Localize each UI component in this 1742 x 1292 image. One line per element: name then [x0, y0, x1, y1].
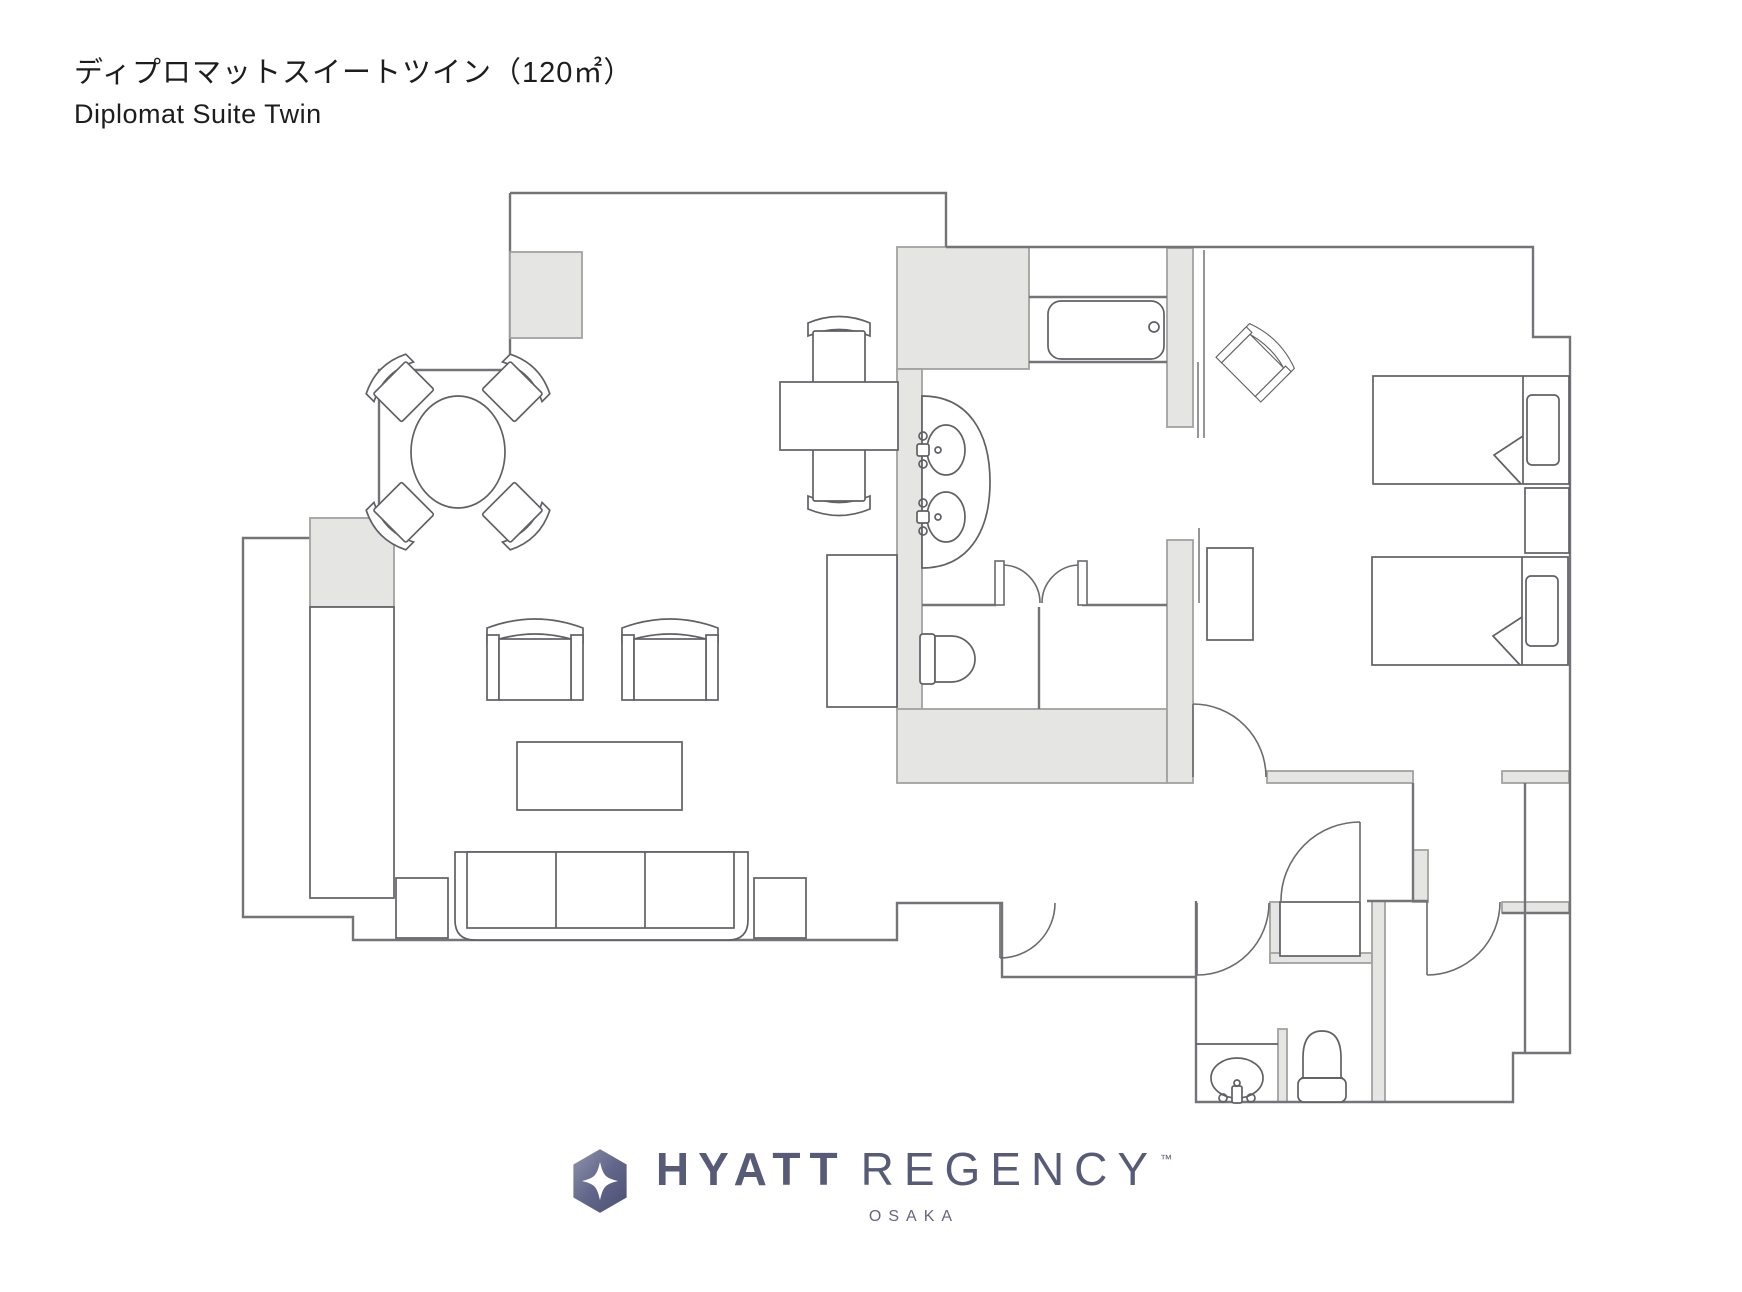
vanity-double-sink [917, 396, 990, 568]
logo-word-regency: REGENCY [861, 1142, 1158, 1196]
wc-double-swing-door [995, 561, 1087, 605]
wall-strip-bath-west [897, 369, 922, 710]
twin-bed-1 [1373, 376, 1569, 484]
logo-location: OSAKA [869, 1208, 959, 1226]
closet-partitions [1367, 783, 1569, 1053]
wall-stub-closet [1413, 850, 1428, 902]
tall-cabinet [827, 555, 897, 707]
hall-closet-door [1427, 902, 1500, 975]
lounge-armchair [622, 619, 718, 700]
hyatt-hexagon-icon [570, 1148, 630, 1214]
console-cabinet [310, 607, 394, 898]
floor-plan [0, 0, 1742, 1292]
logo-trademark: ™ [1160, 1152, 1172, 1166]
work-desk-set [780, 317, 898, 516]
powder-room [1196, 1031, 1346, 1103]
corridor-door [1281, 822, 1360, 901]
wall-strip-bath-bedroom-lower [1167, 540, 1193, 783]
desk-table [780, 382, 898, 450]
twin-bed-2 [1372, 557, 1568, 665]
wall-band-bath-south [897, 709, 1167, 783]
wall-strip-bath-bedroom-upper [1167, 248, 1193, 427]
brand-logo: HYATT REGENCY ™ OSAKA [0, 1142, 1742, 1226]
desk-chair [808, 447, 870, 516]
bedroom-door [1193, 704, 1266, 777]
sofa [455, 852, 748, 940]
page: ディプロマットスイートツイン（120㎡） Diplomat Suite Twin [0, 0, 1742, 1292]
entrance-door [1000, 903, 1055, 958]
logo-word-hyatt: HYATT [656, 1142, 847, 1196]
powder-toilet [1298, 1031, 1346, 1102]
side-table [396, 878, 448, 938]
bedroom [1216, 319, 1569, 665]
nightstand [1525, 488, 1569, 553]
bathtub [1048, 301, 1164, 359]
wc-toilet [920, 634, 975, 684]
entry-shoe-closet [1280, 902, 1360, 956]
wall-bar-hall-east [1502, 902, 1569, 913]
sliding-door-tracks [1198, 250, 1204, 603]
wall-bar-corridor-west [1267, 771, 1413, 783]
wall-block-bath-nw [897, 247, 1029, 369]
desk-chair [808, 317, 870, 386]
wall-bar-corridor-east [1502, 771, 1569, 783]
bedroom-armchair [1216, 319, 1299, 402]
coffee-table [517, 742, 682, 810]
powder-sink [1196, 1044, 1278, 1103]
powder-partition-stub [1278, 1029, 1287, 1102]
lounge-armchair [487, 619, 583, 700]
bedroom-cabinet [1207, 548, 1253, 640]
tv-board [510, 252, 582, 338]
living-room [310, 252, 898, 940]
powder-room-door [1197, 903, 1269, 975]
dining-table [411, 396, 505, 508]
dining-set [361, 349, 555, 555]
wall-strip-powder-east [1372, 901, 1385, 1102]
side-table [754, 878, 806, 938]
